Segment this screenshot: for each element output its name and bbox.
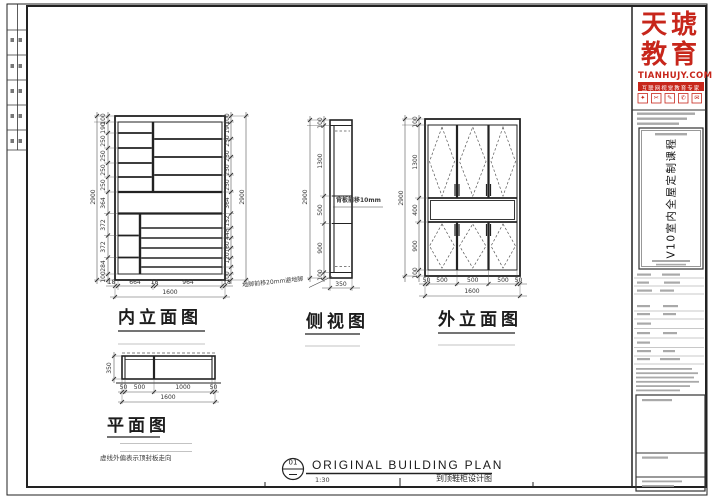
dim-overall-width: 1600 — [162, 290, 177, 296]
view-label-inner-elevation: 内立面图 — [118, 309, 202, 328]
logo-brand-line2: 教育 — [641, 42, 701, 68]
dim-label: 284 — [101, 260, 107, 271]
logo-icon-4: ✆ — [681, 95, 686, 102]
dim-label: 500 — [318, 204, 324, 215]
logo-website: TIANHUJY.COM — [638, 71, 713, 81]
dim-overall-width: 1600 — [464, 289, 479, 295]
dim-label: 250 — [225, 179, 231, 190]
dim-label: 250 — [101, 135, 107, 146]
dim-label: 900 — [318, 242, 324, 253]
dim-label: 18 — [108, 280, 116, 286]
dim-label: 190 — [101, 122, 107, 133]
logo-icon-5: ✉ — [694, 95, 699, 102]
dim-label: 50 — [423, 278, 431, 284]
outer-elevation-drawing — [425, 119, 520, 276]
dim-label: 364 — [225, 197, 231, 208]
dim-label: 448 — [225, 228, 231, 239]
dim-label: 372 — [101, 219, 107, 230]
door-handles — [455, 184, 491, 236]
dim-label: 400 — [413, 204, 419, 215]
drawing-title: ORIGINAL BUILDING PLAN — [312, 458, 503, 472]
dim-label: 1000 — [175, 385, 190, 391]
dim-label: 120 — [225, 252, 231, 263]
dim-label: 100 — [318, 269, 324, 280]
dim-label: 1300 — [318, 153, 324, 168]
view-label-outer-elevation: 外立面图 — [438, 311, 522, 330]
note-back-panel: 背板前移10mm — [336, 198, 381, 204]
dim-label: 250 — [225, 135, 231, 146]
course-title: V10室内全屋定制课程 — [664, 137, 679, 258]
dim-label: 364 — [101, 197, 107, 208]
dim-label: 500 — [497, 278, 508, 284]
dim-overall-width: 1600 — [160, 395, 175, 401]
dim-overall-height: 2900 — [303, 189, 309, 204]
dim-label: 18 — [151, 280, 159, 286]
dim-label: 250 — [101, 150, 107, 161]
view-label-side-view: 侧视图 — [306, 313, 369, 332]
logo-icon-3: ✎ — [667, 95, 672, 102]
note-plan-dashed-line: 虚线外偏表示顶封板走向 — [100, 455, 172, 462]
dim-label: 190 — [225, 122, 231, 133]
dim-label: 160 — [225, 241, 231, 252]
dim-depth: 350 — [107, 362, 113, 373]
dim-label: 50 — [210, 385, 218, 391]
dim-overall-height: 2900 — [399, 190, 405, 205]
dim-overall-height: 2900 — [240, 189, 246, 204]
view-label-plan: 平面图 — [107, 417, 170, 436]
logo-tagline: 互联网视觉教育专家 — [640, 84, 702, 92]
dim-label: 100 — [413, 267, 419, 278]
dim-label: 500 — [436, 278, 447, 284]
dim-label: 250 — [225, 164, 231, 175]
dim-overall-height: 2900 — [91, 189, 97, 204]
plan-view-drawing — [116, 353, 221, 383]
logo-icon-1: ✦ — [640, 95, 645, 102]
dim-label: 250 — [101, 164, 107, 175]
dim-label: 964 — [182, 280, 193, 286]
dim-label: 152 — [225, 215, 231, 226]
dim-label: 100 — [413, 116, 419, 127]
dim-label: 250 — [225, 150, 231, 161]
dim-label: 50 — [120, 385, 128, 391]
dim-label: 100 — [101, 271, 107, 282]
dim-label: 372 — [101, 241, 107, 252]
dim-label: 900 — [413, 240, 419, 251]
dim-label: 100 — [318, 117, 324, 128]
dim-label: 250 — [101, 179, 107, 190]
drawing-scale: 1:30 — [315, 477, 330, 484]
revision-strip-marks — [11, 38, 23, 143]
dim-label: 18 — [223, 280, 231, 286]
dim-width: 350 — [335, 282, 346, 288]
inner-elevation-drawing — [115, 116, 225, 280]
dim-label: 664 — [129, 280, 140, 286]
dim-label: 1300 — [413, 154, 419, 169]
drawing-name: 到顶鞋柜设计图 — [436, 475, 492, 483]
drawing-sheet: 天琥 教育 TIANHUJY.COM 互联网视觉教育专家 ✦ ✂ ✎ ✆ ✉ V… — [0, 0, 714, 500]
detail-number: 01 — [289, 460, 298, 467]
dim-label: 50 — [515, 278, 523, 284]
outer-elevation-dimensions — [402, 115, 527, 298]
dim-label: 500 — [467, 278, 478, 284]
dim-label: 500 — [134, 385, 145, 391]
logo-icon-2: ✂ — [654, 95, 659, 102]
logo-brand-line1: 天琥 — [641, 12, 701, 38]
revision-strip — [7, 4, 27, 150]
